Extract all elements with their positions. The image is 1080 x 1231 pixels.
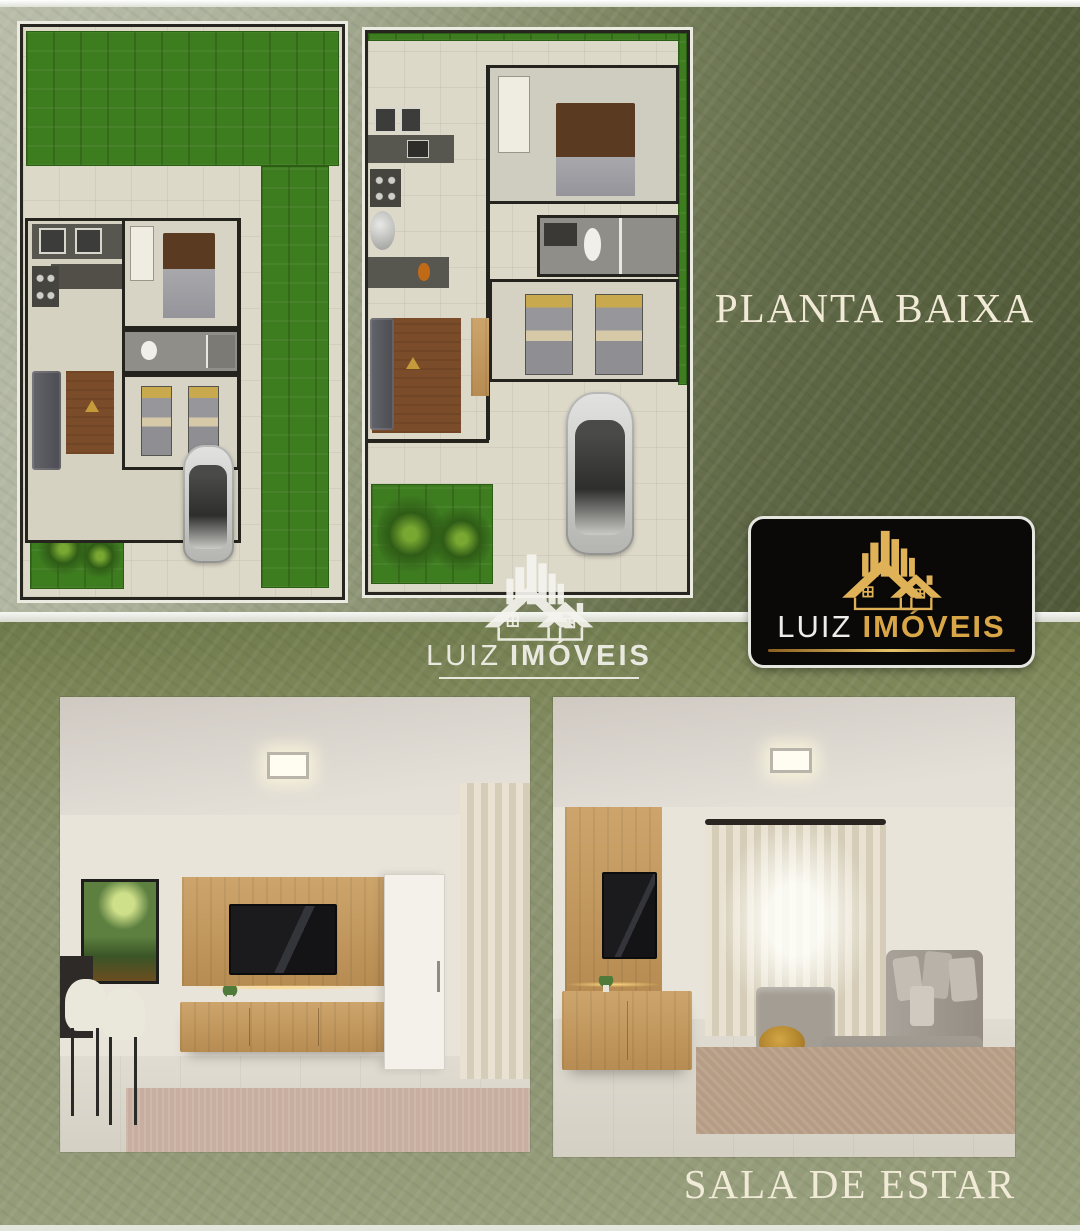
- single-bed: [141, 386, 172, 456]
- closet: [130, 226, 155, 281]
- shower-divider: [619, 218, 622, 273]
- appliance: [39, 228, 66, 253]
- brand-underline: [439, 677, 639, 679]
- curtain: [460, 783, 531, 1079]
- water-heater: [370, 211, 396, 250]
- open-door: [384, 874, 445, 1070]
- lawn-top: [26, 31, 339, 166]
- living-rug: [66, 371, 114, 454]
- bedroom-2: [489, 279, 679, 382]
- kitchen-island: [368, 257, 449, 288]
- brand-word-1: LUIZ: [777, 611, 852, 642]
- area-rug: [696, 1047, 1015, 1134]
- appliance: [400, 107, 422, 133]
- buildings-house-icon: [459, 548, 619, 644]
- bottom-section: SALA DE ESTAR: [0, 622, 1080, 1225]
- stove: [32, 266, 59, 307]
- car: [183, 445, 234, 564]
- planta-baixa-title: PLANTA BAIXA: [690, 284, 1060, 332]
- closet: [498, 76, 530, 153]
- single-bed: [595, 294, 643, 376]
- media-credenza: [180, 1002, 389, 1052]
- living-room-render-1: [60, 697, 530, 1152]
- rug-decor: [406, 357, 420, 369]
- double-bed: [556, 103, 635, 196]
- brand-name: LUIZ IMÓVEIS: [777, 611, 1005, 642]
- bedroom-1: [486, 65, 679, 204]
- rug-decor: [85, 400, 99, 412]
- plant: [598, 976, 614, 990]
- bathroom: [122, 329, 240, 374]
- toilet: [141, 341, 157, 360]
- brand-word-1: LUIZ: [426, 642, 501, 671]
- floor-plan-detail: [365, 30, 690, 595]
- tv: [602, 872, 657, 959]
- brand-name: LUIZ IMÓVEIS: [426, 642, 652, 671]
- double-bed: [163, 233, 214, 317]
- lawn-edge-top: [368, 33, 687, 41]
- living-sofa: [32, 371, 61, 470]
- sala-de-estar-title: SALA DE ESTAR: [640, 1160, 1060, 1208]
- living-sofa: [370, 318, 394, 430]
- car: [566, 392, 635, 554]
- stove: [370, 169, 401, 207]
- toilet: [584, 228, 602, 261]
- bar-stool: [102, 988, 144, 1125]
- sofa-pillow: [910, 986, 934, 1026]
- bottom-edge-strip: [0, 1225, 1080, 1231]
- kitchen-sink-counter: [368, 135, 454, 163]
- brand-word-2: IMÓVEIS: [510, 642, 652, 671]
- single-bed: [525, 294, 573, 376]
- media-credenza: [562, 991, 691, 1069]
- bathroom: [537, 215, 679, 276]
- brand-underline: [768, 649, 1015, 652]
- vanity: [544, 223, 577, 246]
- bedroom-1: [122, 218, 240, 330]
- tv-bench: [471, 318, 489, 396]
- ceiling-light: [770, 748, 812, 773]
- kitchen-counter: [32, 224, 122, 259]
- top-edge-strip: [0, 0, 1080, 7]
- flyer-canvas: PLANTA BAIXA: [0, 0, 1080, 1231]
- sofa-pillow: [949, 957, 979, 1002]
- led-glow: [187, 985, 380, 990]
- brand-watermark: LUIZ IMÓVEIS: [423, 548, 655, 679]
- wall: [368, 439, 489, 443]
- bar-stool: [65, 979, 107, 1116]
- area-rug: [126, 1088, 530, 1152]
- buildings-house-icon: [817, 525, 967, 613]
- tv: [229, 904, 337, 975]
- plant: [222, 986, 238, 1000]
- lawn-right-strip: [261, 166, 330, 588]
- brand-badge: LUIZ IMÓVEIS: [748, 516, 1035, 668]
- appliance: [374, 107, 396, 133]
- living-room-render-2: [553, 697, 1015, 1157]
- shower: [206, 335, 235, 367]
- ceiling-light: [267, 752, 309, 779]
- floor-plan-site: [20, 24, 345, 600]
- brand-word-2: IMÓVEIS: [862, 611, 1005, 642]
- kitchen-sink-counter: [51, 264, 124, 290]
- lawn-edge-right: [678, 33, 687, 385]
- appliance: [75, 228, 102, 253]
